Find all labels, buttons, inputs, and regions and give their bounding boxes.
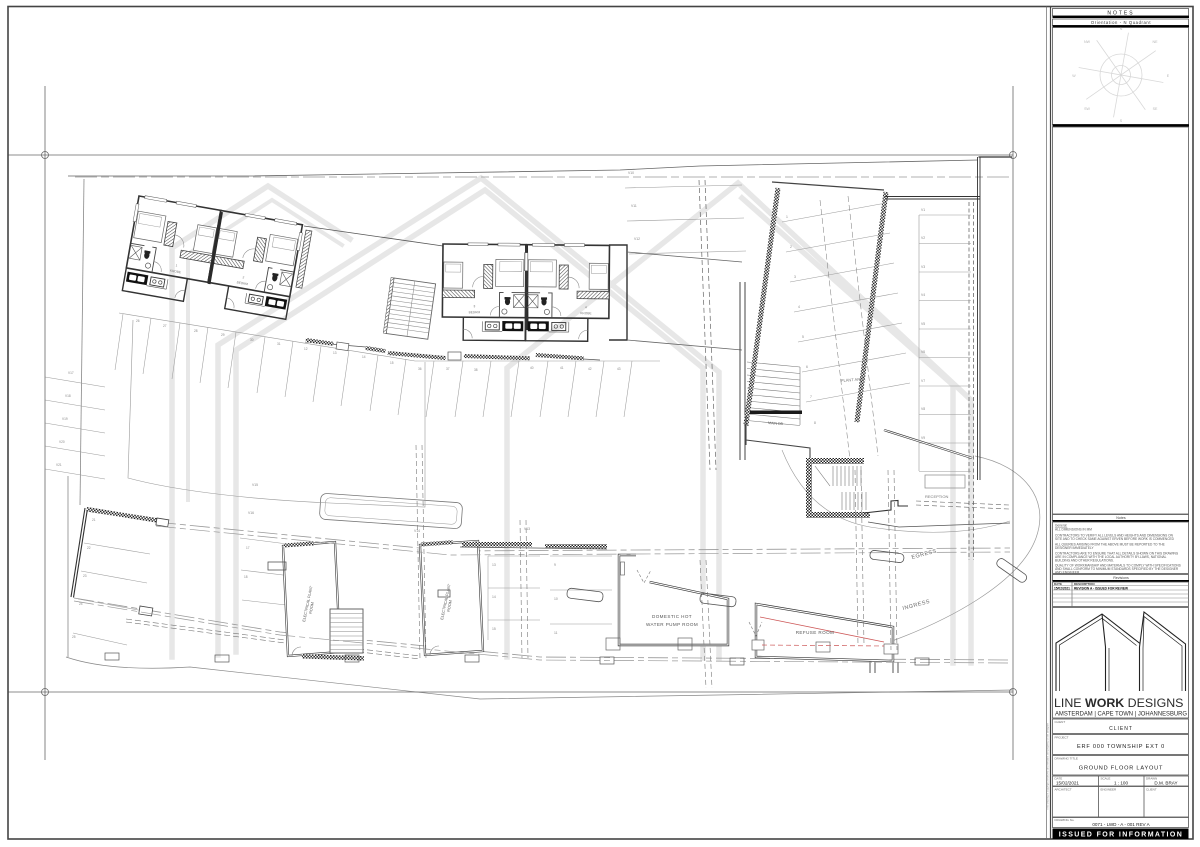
svg-text:4: 4	[798, 305, 800, 309]
svg-text:ISSUED FOR INFORMATION: ISSUED FOR INFORMATION	[1059, 831, 1183, 838]
svg-text:ARCHITECT: ARCHITECT	[1055, 788, 1072, 792]
svg-text:REVISION A - ISSUED FOR REVIEW: REVISION A - ISSUED FOR REVIEW	[1074, 586, 1128, 590]
svg-text:W: W	[1072, 74, 1076, 78]
svg-text:15/02/2021: 15/02/2021	[1056, 781, 1079, 786]
svg-text:14: 14	[362, 355, 366, 359]
svg-text:NOTES: NOTES	[1107, 10, 1134, 16]
svg-text:V1: V1	[921, 208, 925, 212]
svg-text:V11: V11	[631, 204, 637, 208]
svg-text:15: 15	[492, 627, 496, 631]
svg-text:V6: V6	[921, 350, 925, 354]
svg-text:Orientation - N Quadrant: Orientation - N Quadrant	[1091, 20, 1151, 25]
svg-text:V15: V15	[252, 483, 258, 487]
svg-text:0071 - LWD - A - 001 REV A: 0071 - LWD - A - 001 REV A	[1092, 822, 1150, 827]
svg-text:ERF 000 TOWNSHIP EXT 0: ERF 000 TOWNSHIP EXT 0	[1077, 744, 1165, 750]
svg-text:36: 36	[418, 367, 422, 371]
svg-text:This drawing is copyright rese: This drawing is copyright reserved and r…	[1046, 723, 1050, 810]
svg-text:REFUSE ROOM: REFUSE ROOM	[796, 630, 835, 635]
svg-text:DATE: DATE	[1054, 582, 1062, 586]
svg-text:BEDRM: BEDRM	[469, 310, 481, 314]
svg-text:Notes: Notes	[1116, 516, 1126, 520]
svg-text:N: N	[1120, 27, 1123, 31]
svg-text:RECEPTION: RECEPTION	[925, 494, 948, 499]
svg-text:27: 27	[163, 324, 167, 328]
svg-text:38: 38	[474, 368, 478, 372]
svg-text:28: 28	[194, 329, 198, 333]
svg-text:18: 18	[244, 575, 248, 579]
svg-text:2: 2	[790, 245, 792, 249]
svg-text:40: 40	[530, 366, 534, 370]
svg-text:V4: V4	[921, 293, 925, 297]
svg-text:15: 15	[390, 361, 394, 365]
svg-text:WATER PUMP ROOM: WATER PUMP ROOM	[646, 622, 698, 627]
svg-text:5: 5	[802, 335, 804, 339]
svg-text:SCALE: SCALE	[1101, 777, 1111, 781]
svg-text:V20: V20	[59, 440, 65, 444]
svg-text:BUILDING AND OTHER REGULATIONS: BUILDING AND OTHER REGULATIONS.	[1055, 559, 1114, 563]
svg-text:DRAWING No.: DRAWING No.	[1055, 818, 1075, 822]
svg-text:25: 25	[72, 635, 76, 639]
svg-text:13: 13	[492, 563, 496, 567]
svg-text:LINE WORK DESIGNS: LINE WORK DESIGNS	[1054, 696, 1183, 710]
svg-text:SE: SE	[1153, 107, 1158, 111]
svg-text:42: 42	[588, 367, 592, 371]
svg-text:D.M. BRAY: D.M. BRAY	[1154, 781, 1177, 786]
svg-text:NE: NE	[1153, 40, 1159, 44]
svg-text:V17: V17	[68, 371, 74, 375]
svg-text:ENGINEER: ENGINEER	[1101, 788, 1118, 792]
svg-text:V8: V8	[921, 407, 925, 411]
svg-text:V12: V12	[634, 237, 640, 241]
svg-text:DESIGNER IMMEDIATELY: DESIGNER IMMEDIATELY	[1055, 546, 1095, 550]
svg-text:15/02/2021: 15/02/2021	[1054, 586, 1070, 590]
svg-text:CLIENT: CLIENT	[1055, 720, 1066, 724]
svg-text:26: 26	[136, 319, 140, 323]
svg-text:3: 3	[474, 304, 476, 308]
svg-text:SW: SW	[1084, 107, 1090, 111]
svg-text:10: 10	[554, 597, 558, 601]
svg-text:V2: V2	[921, 236, 925, 240]
svg-text:KROBE: KROBE	[580, 311, 591, 315]
svg-text:1 : 100: 1 : 100	[1114, 781, 1128, 786]
svg-text:V21: V21	[56, 463, 62, 467]
svg-text:21: 21	[92, 518, 96, 522]
svg-text:DESCRIPTION: DESCRIPTION	[1074, 582, 1095, 586]
svg-text:V3: V3	[921, 265, 925, 269]
svg-text:V7: V7	[921, 379, 925, 383]
svg-text:CLIENT: CLIENT	[1109, 726, 1133, 732]
svg-text:PROJECT: PROJECT	[1055, 736, 1069, 740]
svg-text:AND ENGINEER.: AND ENGINEER.	[1055, 570, 1080, 574]
svg-text:17: 17	[246, 546, 250, 550]
svg-text:8: 8	[814, 421, 816, 425]
svg-text:V9: V9	[921, 436, 925, 440]
svg-text:DRAWING TITLE: DRAWING TITLE	[1055, 757, 1078, 761]
svg-text:37: 37	[446, 367, 450, 371]
svg-text:41: 41	[560, 366, 564, 370]
svg-text:V19: V19	[62, 417, 68, 421]
svg-text:CLIENT: CLIENT	[1146, 788, 1157, 792]
svg-text:V13: V13	[524, 527, 530, 531]
svg-text:Revisions: Revisions	[1113, 576, 1129, 580]
svg-text:12: 12	[304, 347, 308, 351]
svg-text:22: 22	[87, 546, 91, 550]
svg-text:GROUND FLOOR LAYOUT: GROUND FLOOR LAYOUT	[1079, 766, 1163, 772]
svg-text:29: 29	[221, 333, 225, 337]
svg-text:7: 7	[810, 395, 812, 399]
svg-text:31: 31	[277, 342, 281, 346]
svg-text:V18: V18	[65, 394, 71, 398]
svg-text:V10: V10	[628, 171, 634, 175]
svg-text:SITE AND TO CHECK SAME AGAINST: SITE AND TO CHECK SAME AGAINST ERVEN BEF…	[1055, 537, 1175, 541]
svg-text:6: 6	[806, 365, 808, 369]
svg-text:1: 1	[786, 215, 788, 219]
svg-text:AMSTERDAM | CAPE TOWN | JOHANN: AMSTERDAM | CAPE TOWN | JOHANNESBURG	[1055, 711, 1187, 718]
svg-text:23: 23	[83, 574, 87, 578]
svg-text:ALL DIMENSIONS IN MM: ALL DIMENSIONS IN MM	[1055, 528, 1092, 532]
svg-text:V5: V5	[921, 322, 925, 326]
svg-text:13: 13	[333, 351, 337, 355]
svg-text:V16: V16	[248, 511, 254, 515]
svg-text:11: 11	[554, 631, 558, 635]
svg-text:30: 30	[250, 338, 254, 342]
svg-text:9: 9	[554, 563, 556, 567]
svg-text:14: 14	[492, 595, 496, 599]
svg-text:NW: NW	[1084, 40, 1091, 44]
svg-text:3: 3	[794, 275, 796, 279]
svg-text:4: 4	[585, 305, 587, 309]
svg-text:V14: V14	[414, 529, 420, 533]
svg-text:DOMESTIC HOT: DOMESTIC HOT	[652, 614, 692, 619]
svg-text:43: 43	[617, 367, 621, 371]
